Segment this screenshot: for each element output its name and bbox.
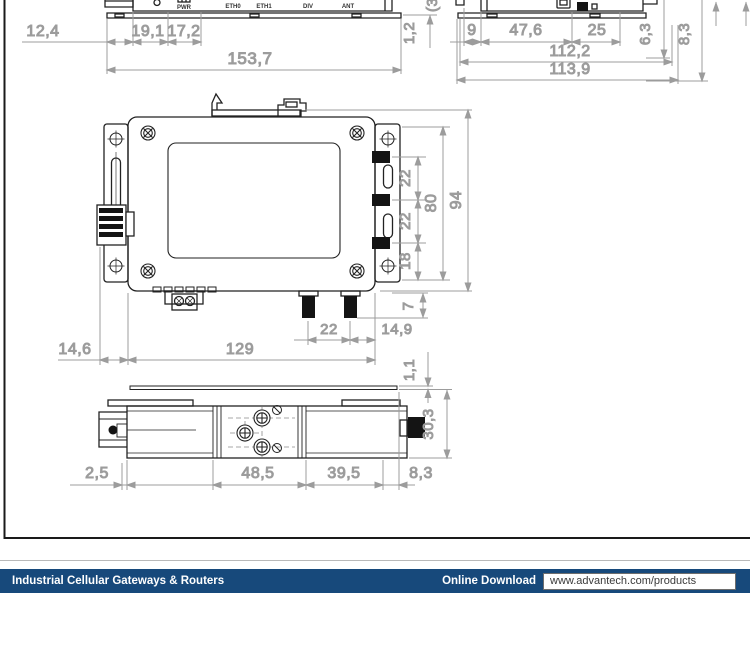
dim-pwr-offset: 19,1 (131, 23, 164, 40)
dim-plate-thickness: 1,2 (401, 22, 418, 44)
dim-antenna-protrusion: 7 (400, 302, 417, 311)
dim-conn-pitch-1: 22 (397, 169, 414, 187)
antenna-connector-icon (299, 291, 318, 296)
dim-overall-depth: 30,3 (420, 408, 437, 439)
front-panel-view: PWR ETH0 ETH1 DIV ANT 12,4 19,1 17,2 153… (22, 0, 441, 74)
bracket-hole-icon (380, 131, 397, 148)
bracket-slot (384, 214, 393, 238)
dim-rear-section: 25 (588, 22, 607, 39)
din-foot-plate (130, 386, 397, 390)
dim-plate-thickness-bottom: 1,1 (401, 359, 418, 381)
bottom-screw-icon (237, 425, 253, 441)
bottom-view: 1,1 2,5 48,5 39,5 8,3 30,3 (70, 352, 452, 490)
dim-overall-width-side: 113,9 (549, 61, 590, 78)
dim-step-b: 8,3 (676, 23, 693, 45)
port-label-eth0: ETH0 (225, 4, 241, 10)
datasheet-page: PWR ETH0 ETH1 DIV ANT 12,4 19,1 17,2 153… (0, 0, 750, 650)
dim-front-section: 47,6 (509, 22, 542, 39)
sma-connector-icon (372, 237, 390, 249)
footer-url[interactable]: www.advantech.com/products (550, 575, 696, 587)
corner-screw-icon (141, 264, 155, 278)
dim-bracket: 9 (467, 22, 476, 39)
footer-url-box[interactable]: www.advantech.com/products (543, 573, 736, 590)
bottom-screw-icon (254, 410, 270, 426)
bracket-plate-right (342, 400, 400, 406)
footer-bar: Industrial Cellular Gateways & Routers O… (0, 569, 750, 593)
port-label-div: DIV (303, 4, 313, 10)
label-area (168, 143, 340, 258)
bracket-hole-icon (380, 258, 397, 275)
dim-plate-offset: 12,4 (26, 23, 59, 40)
dim-mid-section: 48,5 (241, 465, 274, 482)
port-label-ant: ANT (342, 4, 355, 10)
page-divider (0, 560, 750, 561)
dim-antenna-offset: 14,9 (381, 321, 412, 338)
dim-right-section: 39,5 (327, 465, 360, 482)
sma-connector-icon (372, 151, 390, 163)
rear-view-outline (97, 94, 400, 318)
bracket-hole-icon (108, 258, 125, 275)
port-label-pwr: PWR (177, 5, 192, 11)
dim-inner-width: 112,2 (549, 43, 590, 60)
bracket-hole-icon (108, 131, 125, 148)
port-label-eth1: ETH1 (256, 4, 272, 10)
footer-download-label: Online Download (442, 575, 536, 587)
dim-clipped: (3 (424, 0, 441, 12)
bracket-slot (384, 165, 393, 188)
bottom-view-details (228, 406, 295, 458)
front-panel-labels: PWR ETH0 ETH1 DIV ANT (177, 4, 354, 11)
side-view: 9 47,6 25 112,2 113,9 6,3 8,3 (450, 0, 749, 84)
power-icon (178, 0, 190, 2)
sma-connector-icon (372, 194, 390, 206)
corner-screw-icon (141, 126, 155, 140)
bottom-screw-icon (254, 439, 270, 455)
side-view-outline (456, 0, 657, 18)
corner-screw-icon (350, 264, 364, 278)
technical-drawing: PWR ETH0 ETH1 DIV ANT 12,4 19,1 17,2 153… (0, 0, 750, 560)
dim-overall-height: 94 (448, 191, 465, 210)
dim-eth-offset: 17,2 (167, 23, 200, 40)
dim-conn-pitch-2: 22 (397, 212, 414, 230)
dim-step-a: 6,3 (637, 23, 654, 45)
bracket-plate-left (108, 400, 193, 406)
reset-button-icon (154, 0, 160, 6)
dim-antenna-pitch: 22 (320, 321, 338, 338)
front-panel-outline (105, 0, 401, 18)
dim-bracket-holes: 80 (423, 194, 440, 213)
rear-view: 22 22 18 80 94 22 14,9 7 14,6 129 (58, 94, 472, 365)
dim-overall-width: 153,7 (227, 49, 272, 68)
dim-conn-offset: 18 (397, 252, 414, 270)
corner-screw-icon (350, 126, 364, 140)
dim-edge-gap: 2,5 (85, 465, 109, 482)
dim-body-width: 129 (226, 341, 254, 358)
dim-connector-offset: 8,3 (409, 465, 433, 482)
dim-body-offset: 14,6 (58, 341, 91, 358)
footer-category-label: Industrial Cellular Gateways & Routers (12, 575, 224, 587)
antenna-connector-icon (341, 291, 360, 296)
din-rail-clip (212, 110, 301, 116)
sim-slot-icon (557, 0, 570, 8)
